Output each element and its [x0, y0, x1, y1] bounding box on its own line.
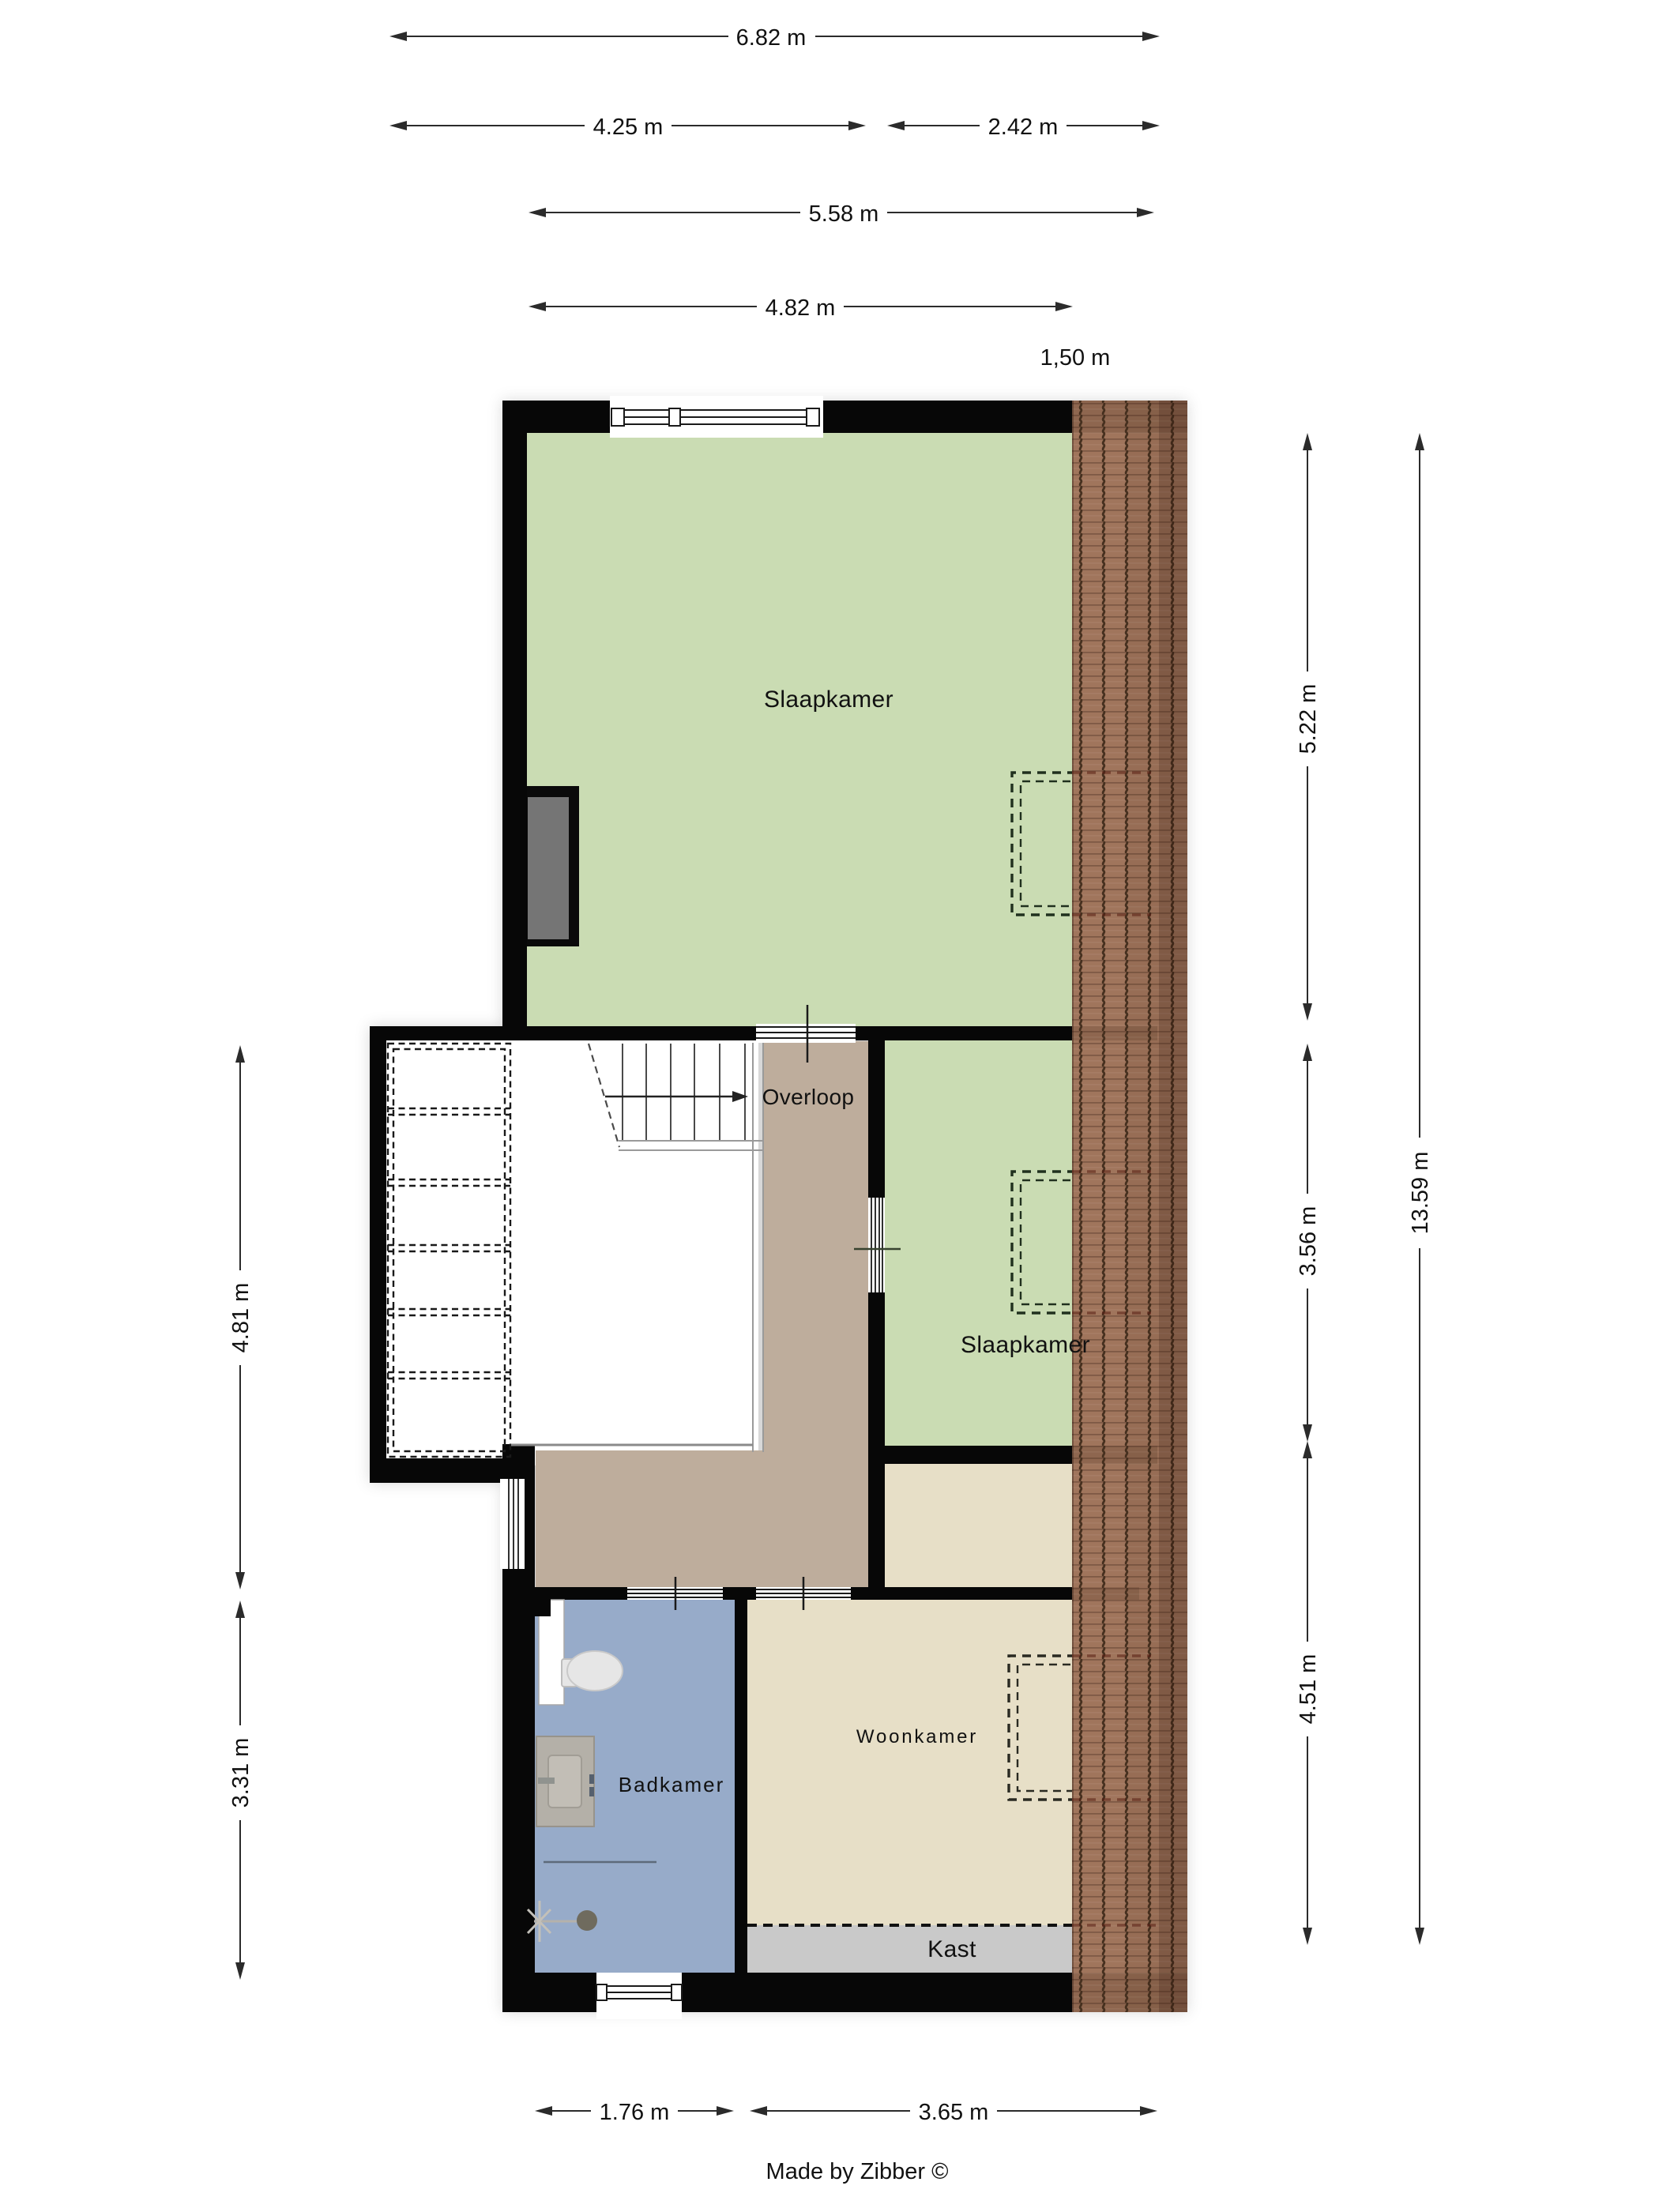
- svg-text:3.65 m: 3.65 m: [919, 2100, 989, 2125]
- svg-text:Woonkamer: Woonkamer: [856, 1726, 978, 1747]
- svg-text:Slaapkamer: Slaapkamer: [961, 1332, 1090, 1358]
- svg-text:1.76 m: 1.76 m: [600, 2100, 670, 2125]
- svg-text:3.31 m: 3.31 m: [228, 1738, 254, 1808]
- svg-text:4.25 m: 4.25 m: [593, 115, 664, 140]
- svg-text:2.42 m: 2.42 m: [988, 115, 1059, 140]
- svg-text:5.22 m: 5.22 m: [1296, 684, 1321, 754]
- svg-text:5.58 m: 5.58 m: [809, 201, 879, 227]
- svg-text:1,50 m: 1,50 m: [1040, 345, 1111, 371]
- svg-text:4.81 m: 4.81 m: [228, 1283, 254, 1353]
- svg-text:Kast: Kast: [927, 1936, 976, 1962]
- svg-text:4.51 m: 4.51 m: [1296, 1654, 1321, 1725]
- svg-text:Badkamer: Badkamer: [619, 1773, 725, 1796]
- svg-text:Overloop: Overloop: [762, 1085, 855, 1109]
- svg-text:Made by Zibber ©: Made by Zibber ©: [766, 2159, 949, 2184]
- svg-text:13.59 m: 13.59 m: [1408, 1152, 1433, 1235]
- svg-text:6.82 m: 6.82 m: [736, 25, 807, 51]
- svg-text:Slaapkamer: Slaapkamer: [764, 687, 893, 713]
- svg-text:4.82 m: 4.82 m: [766, 295, 836, 321]
- svg-text:3.56 m: 3.56 m: [1296, 1206, 1321, 1277]
